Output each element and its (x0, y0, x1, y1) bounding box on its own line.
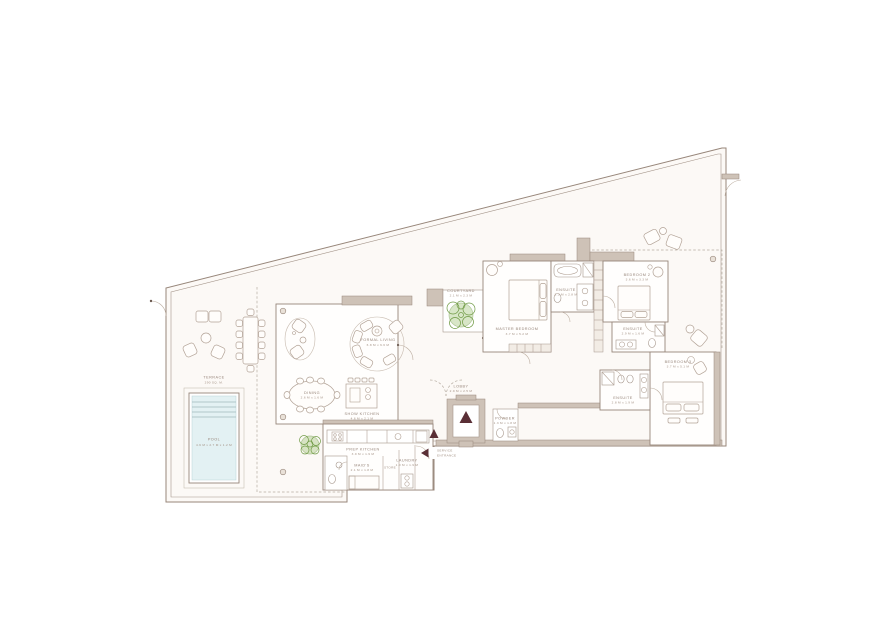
bedroom-2-bed (618, 286, 650, 320)
bedroom-3-dims: 3.7 M x 5.1 M (667, 365, 690, 369)
laundry-label: LAUNDRY (396, 459, 417, 463)
pool: POOL 4.9 M x 2.7 M x 1.2 M (184, 388, 244, 488)
floor-plan-page: TERRACE 290 SQ. M. POOL 4.9 M x 2.7 M x … (0, 0, 888, 640)
column-dot (280, 469, 286, 475)
master-wardrobe (594, 261, 603, 352)
service-entrance-line1: SERVICE (437, 449, 453, 453)
master-bed (509, 280, 547, 320)
terrace-side-table (686, 325, 694, 333)
courtyard-wall (427, 289, 443, 306)
master-ensuite-dims: 2.3 M x 2.8 M (555, 293, 578, 297)
master-closet (509, 344, 551, 352)
bedroom-3-ensuite: ENSUITE 2.8 M x 1.9 M (600, 370, 650, 410)
master-bedroom-dims: 3.7 M x 5.2 M (506, 332, 529, 336)
terrace-entry-door-arc (151, 301, 166, 316)
courtyard-label: COURTYARD (447, 289, 475, 293)
bedroom-2-ensuite-dims: 2.9 M x 1.6 M (622, 332, 645, 336)
floor-plan-drawing: TERRACE 290 SQ. M. POOL 4.9 M x 2.7 M x … (0, 0, 888, 640)
show-kitchen-label: SHOW KITCHEN (345, 412, 380, 416)
pool-label: POOL (208, 438, 220, 442)
living-top-wall (342, 296, 412, 305)
bedroom-2-ensuite-label: ENSUITE (623, 327, 643, 331)
bedroom-3-right-wall (714, 352, 720, 445)
kitchen-counter (327, 430, 429, 443)
living-dining-room: FORMAL LIVING 6.8 M x 6.6 M DINING 2.6 M… (276, 296, 412, 424)
balcony-door-arc (725, 180, 741, 196)
lobby-dims: 2.9 M x 2.5 M (450, 389, 473, 393)
kitchen-block: PREP KITCHEN 3.9 M x 1.9 M MAID'S 2.1 M … (323, 420, 437, 490)
door-hinge-dot (150, 300, 152, 302)
balcony-door-stub (722, 174, 739, 179)
pool-dims: 4.9 M x 2.7 M x 1.2 M (196, 443, 232, 447)
service-door-gap (430, 447, 437, 459)
bedroom-2-ensuite: ENSUITE 2.9 M x 1.6 M (612, 322, 665, 352)
column-dot (280, 308, 286, 314)
master-ensuite: ENSUITE 2.3 M x 2.8 M (551, 261, 594, 312)
courtyard-dims: 2.1 M x 2.3 M (450, 294, 473, 298)
terrace-label: TERRACE (203, 376, 224, 380)
column-dot (280, 414, 286, 420)
column-dot (710, 256, 716, 262)
hall-bottom-wall (518, 403, 600, 408)
bedroom-2-suite: BEDROOM 2 3.6 M x 3.3 M ENSUITE 2.9 M x … (603, 261, 668, 352)
door-hinge-dot (397, 344, 399, 346)
outdoor-side-table (201, 333, 211, 343)
master-bedroom-label: MASTER BEDROOM (496, 327, 539, 331)
master-ensuite-label: ENSUITE (556, 288, 576, 292)
formal-living-label: FORMAL LIVING (360, 338, 395, 342)
bedroom-3-ensuite-dims: 2.8 M x 1.9 M (612, 401, 635, 405)
maids-label: MAID'S (354, 464, 369, 468)
powder-dims: 1.3 M x 1.8 M (494, 421, 517, 425)
store-label: STORE (384, 466, 396, 470)
lounge-side-table (660, 228, 667, 235)
maids-bathroom (325, 456, 347, 490)
formal-living-dims: 6.8 M x 6.6 M (367, 343, 390, 347)
powder-label: POWDER (495, 417, 515, 421)
bedroom-2-label: BEDROOM 2 (624, 273, 651, 277)
lobby-label: LOBBY (454, 385, 469, 389)
bedroom-2-dims: 3.6 M x 3.3 M (626, 278, 649, 282)
prep-kitchen-dims: 3.9 M x 1.9 M (352, 452, 375, 456)
dining-dims: 2.6 M x 1.6 M (301, 396, 324, 400)
laundry-dims: 1.0 M x 1.9 M (396, 463, 419, 467)
terrace-dims: 290 SQ. M. (205, 381, 224, 385)
bedroom-3-label: BEDROOM 3 (665, 360, 692, 364)
elevator (447, 395, 485, 447)
prep-kitchen-label: PREP KITCHEN (346, 448, 379, 452)
maids-bed (349, 476, 379, 489)
maids-dims: 2.1 M x 1.8 M (351, 468, 374, 472)
service-entrance-line2: ENTRANCE (437, 454, 456, 458)
bedroom-3-ensuite-label: ENSUITE (613, 396, 633, 400)
dining-label: DINING (304, 391, 320, 395)
powder-room: POWDER 1.3 M x 1.8 M (493, 409, 518, 441)
